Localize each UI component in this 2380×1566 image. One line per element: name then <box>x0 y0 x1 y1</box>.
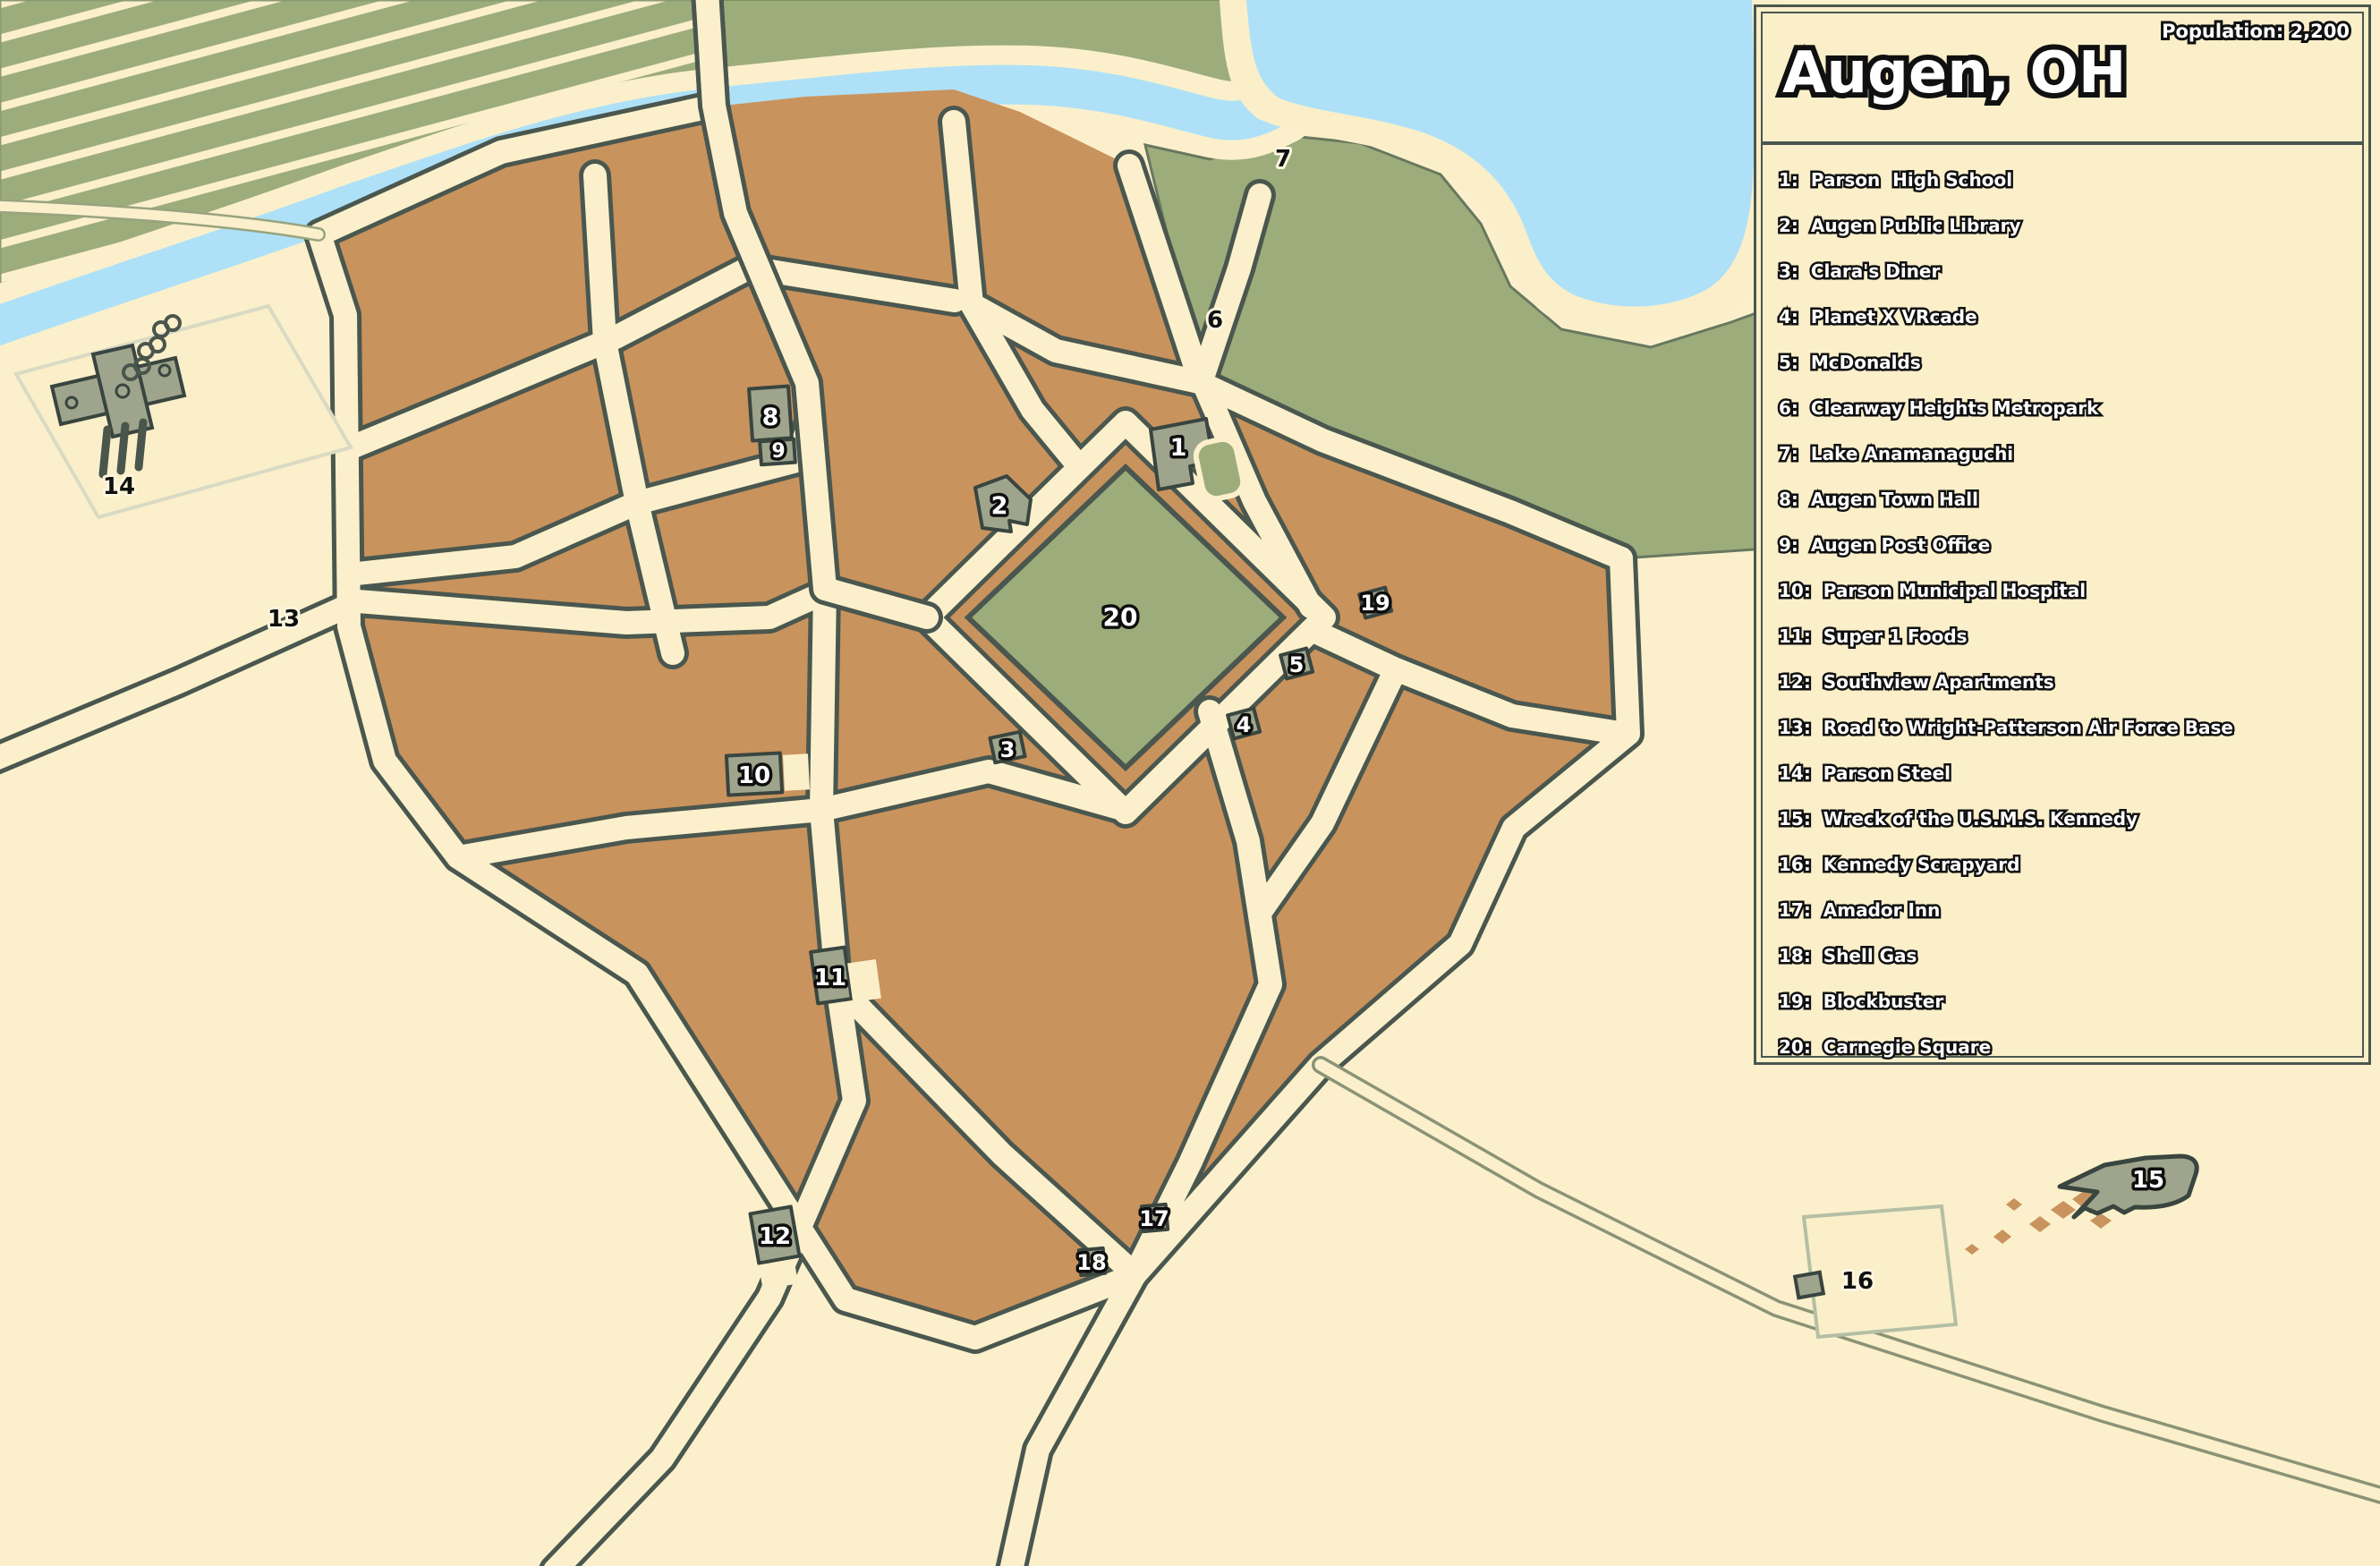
map-marker-label-17: 17 <box>1139 1206 1169 1231</box>
map-marker-label-12: 12 <box>759 1223 791 1250</box>
map-marker-label-11: 11 <box>814 965 846 992</box>
legend-item: 12: Southview Apartments 12: Southview A… <box>1779 660 2362 705</box>
legend-item-text: 10: Parson Municipal Hospital <box>1779 580 2086 601</box>
legend-item-text: 4: Planet X VRcade <box>1779 306 1977 328</box>
legend-item: 16: Kennedy Scrapyard 16: Kennedy Scrapy… <box>1779 842 2362 888</box>
legend-item-text: 19: Blockbuster <box>1779 991 1943 1012</box>
legend-item-text: 8: Augen Town Hall <box>1779 489 1978 510</box>
map-marker-label-18: 18 <box>1076 1250 1106 1275</box>
town-title-text: Augen, OH <box>1782 40 2126 106</box>
town-title: Augen, OH Augen, OH <box>1782 40 2126 112</box>
school-field <box>1194 437 1245 501</box>
map-marker-label-7: 7 <box>1275 146 1291 173</box>
population-badge: Population: 2,200 Population: 2,200 <box>2162 21 2350 44</box>
legend-item-text: 5: McDonalds <box>1779 352 1921 373</box>
map-marker-label-16: 16 <box>1841 1268 1874 1295</box>
legend-item-text: 2: Augen Public Library <box>1779 215 2021 236</box>
legend-item: 20: Carnegie Square 20: Carnegie Square <box>1779 1025 2362 1070</box>
map-marker-label-2: 2 <box>991 492 1008 520</box>
population-text: Population: 2,200 <box>2162 21 2350 42</box>
map-marker-label-4: 4 <box>1237 712 1252 737</box>
legend-item-text: 12: Southview Apartments <box>1779 671 2054 693</box>
map-marker-label-3: 3 <box>1000 737 1016 762</box>
legend-item-text: 14: Parson Steel <box>1779 762 1951 784</box>
legend-item: 10: Parson Municipal Hospital 10: Parson… <box>1779 568 2362 614</box>
legend-item: 1: Parson High School 1: Parson High Sch… <box>1779 157 2362 203</box>
hospital-parking <box>783 753 810 790</box>
legend-item-text: 3: Clara's Diner <box>1779 260 1940 282</box>
legend-item: 4: Planet X VRcade 4: Planet X VRcade <box>1779 294 2362 340</box>
legend-item: 6: Clearway Heights Metropark 6: Clearwa… <box>1779 386 2362 431</box>
kennedy-scrapyard-16 <box>1795 1206 1956 1337</box>
map-marker-label-15: 15 <box>2132 1167 2164 1194</box>
map-marker-label-1: 1 <box>1170 434 1187 462</box>
legend-item-text: 9: Augen Post Office <box>1779 534 1990 556</box>
legend-panel: Augen, OH Augen, OH Population: 2,200 Po… <box>1754 4 2371 1065</box>
legend-list: 1: Parson High School 1: Parson High Sch… <box>1763 157 2362 1070</box>
super1-parking <box>847 959 881 1002</box>
legend-item: 14: Parson Steel 14: Parson Steel <box>1779 751 2362 796</box>
map-marker-label-6: 6 <box>1207 307 1223 334</box>
legend-item: 8: Augen Town Hall 8: Augen Town Hall <box>1779 477 2362 523</box>
map-marker-label-9: 9 <box>771 440 785 463</box>
map-screenshot: 1234567891011121314151617181920 Augen, O… <box>0 0 2380 1566</box>
legend-item-text: 6: Clearway Heights Metropark <box>1779 397 2098 419</box>
legend-item-text: 11: Super 1 Foods <box>1779 626 1968 647</box>
legend-item: 2: Augen Public Library 2: Augen Public … <box>1779 203 2362 249</box>
legend-item-text: 7: Lake Anamanaguchi <box>1779 443 2013 464</box>
legend-item: 17: Amador Inn 17: Amador Inn <box>1779 888 2362 933</box>
rivet <box>159 365 170 376</box>
legend-item: 15: Wreck of the U.S.M.S. Kennedy 15: Wr… <box>1779 796 2362 842</box>
legend-header: Augen, OH Augen, OH Population: 2,200 Po… <box>1763 13 2362 145</box>
legend-item-text: 18: Shell Gas <box>1779 945 1917 966</box>
legend-item: 7: Lake Anamanaguchi 7: Lake Anamanaguch… <box>1779 431 2362 477</box>
legend-item: 11: Super 1 Foods 11: Super 1 Foods <box>1779 614 2362 660</box>
rivet <box>116 385 129 397</box>
legend-item-text: 13: Road to Wright-Patterson Air Force B… <box>1779 717 2233 738</box>
legend-item: 9: Augen Post Office 9: Augen Post Offic… <box>1779 523 2362 568</box>
map-marker-label-5: 5 <box>1289 652 1305 677</box>
legend-item-text: 16: Kennedy Scrapyard <box>1779 854 2019 875</box>
map-marker-label-20: 20 <box>1103 602 1138 632</box>
map-marker-label-14: 14 <box>103 473 135 500</box>
legend-item: 13: Road to Wright-Patterson Air Force B… <box>1779 705 2362 751</box>
map-marker-label-13: 13 <box>268 606 300 633</box>
legend-item: 19: Blockbuster 19: Blockbuster <box>1779 979 2362 1025</box>
legend-item: 18: Shell Gas 18: Shell Gas <box>1779 933 2362 979</box>
legend-item-text: 1: Parson High School <box>1779 169 2012 191</box>
scrapyard-shed <box>1795 1272 1823 1298</box>
legend-item-text: 20: Carnegie Square <box>1779 1036 1991 1058</box>
legend-inner-frame: Augen, OH Augen, OH Population: 2,200 Po… <box>1761 12 2364 1058</box>
map-marker-label-8: 8 <box>762 404 779 431</box>
legend-item-text: 17: Amador Inn <box>1779 899 1940 921</box>
map-marker-label-19: 19 <box>1360 591 1390 616</box>
rivet <box>66 397 77 408</box>
legend-item-text: 15: Wreck of the U.S.M.S. Kennedy <box>1779 808 2138 830</box>
legend-item: 3: Clara's Diner 3: Clara's Diner <box>1779 249 2362 294</box>
legend-item: 5: McDonalds 5: McDonalds <box>1779 340 2362 386</box>
map-marker-label-10: 10 <box>738 762 770 789</box>
